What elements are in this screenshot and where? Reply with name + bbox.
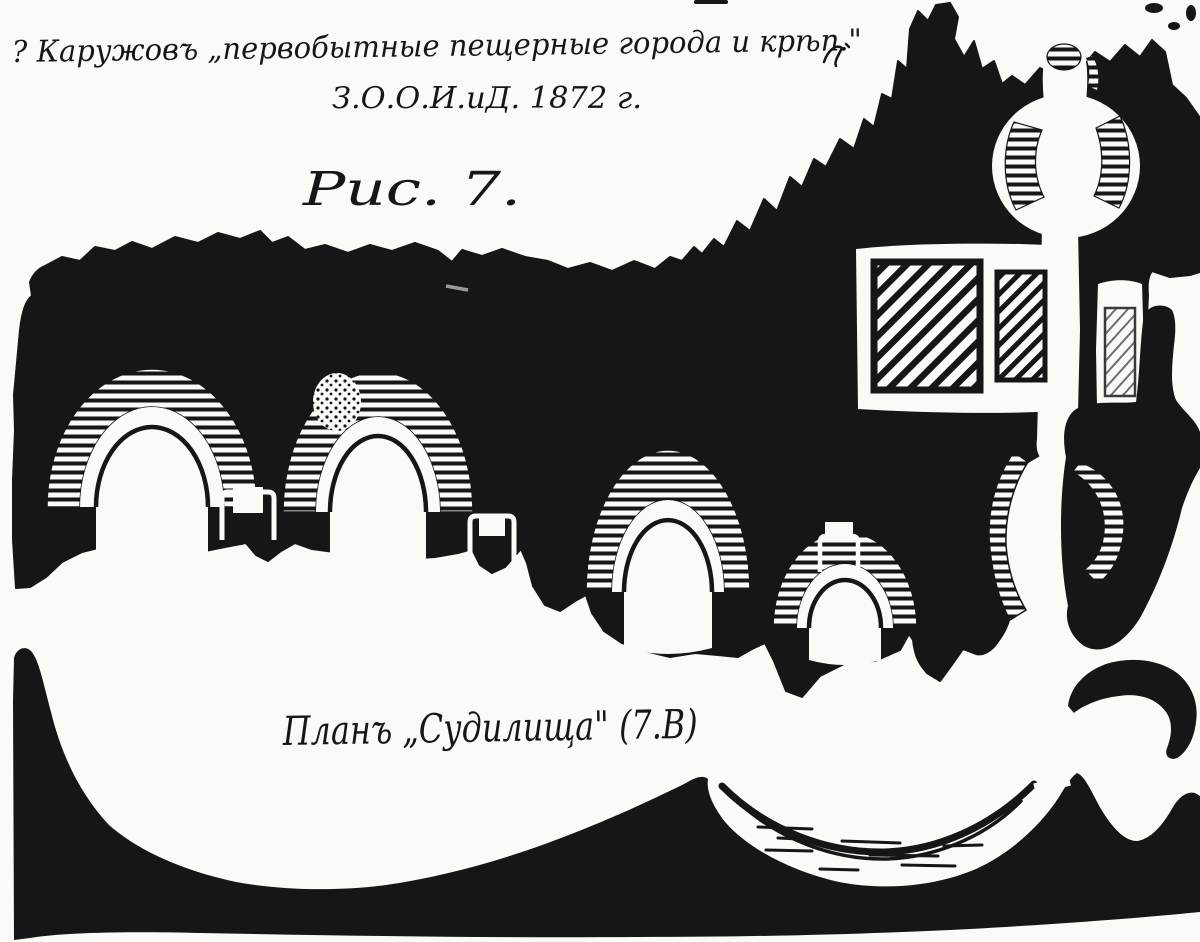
door-frame-2-block	[479, 514, 505, 536]
figure-label: Рис. 7.	[302, 162, 521, 217]
figure-caption: Планъ „Судилища" (7.В)	[282, 702, 699, 755]
faint-slab	[1105, 308, 1135, 396]
door-frame-1-block	[233, 487, 263, 513]
hatched-slab-small	[997, 272, 1045, 380]
stippled-damage-patch	[313, 373, 361, 431]
neck-hatched-dome	[1047, 44, 1081, 70]
hatched-slab-large	[874, 262, 980, 390]
chamber-outlet	[1042, 220, 1078, 246]
corner-letter-mark: c	[846, 153, 857, 177]
figure-drawing: ? Каружовъ „первобытные пещерные города …	[0, 0, 1200, 942]
citation-line2: З.О.О.И.иД. 1872 г.	[332, 81, 642, 116]
crown-recess-block	[825, 522, 853, 540]
scanned-page: ? Каружовъ „первобытные пещерные города …	[0, 0, 1200, 942]
